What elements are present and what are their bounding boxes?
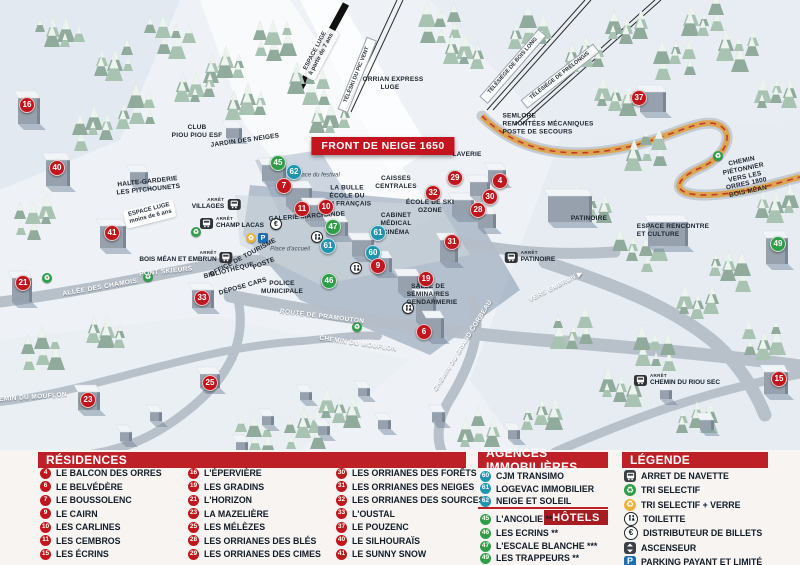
legend-marker-30: 30 — [336, 468, 347, 479]
legend-label: LES CARLINES — [56, 522, 121, 532]
bus-icon — [202, 218, 211, 227]
map-marker-37: 37 — [631, 90, 647, 106]
euro-legend-icon: € — [624, 526, 638, 540]
legend-marker-19: 19 — [188, 481, 199, 492]
residence-row: 33L'OUSTAL — [336, 507, 395, 520]
legend-label: LES ORRIANES DES BLÉS — [204, 536, 316, 546]
legende-row: ASCENSEUR — [624, 541, 696, 554]
legend-marker-16: 16 — [188, 468, 199, 479]
legend-label: LES ORRIANES DES NEIGES — [352, 482, 474, 492]
legend-marker-32: 32 — [336, 495, 347, 506]
legend-label: PARKING PAYANT ET LIMITÉ — [641, 557, 762, 565]
verre-legend-icon: ♻ — [624, 499, 636, 511]
map-label: TÉLÉSIÈGE DE PRÉLONGIS — [521, 44, 600, 109]
residence-row: 15LES ÉCRINS — [40, 548, 109, 561]
legend-label: L'ANCOLIE ** — [496, 514, 552, 524]
map-label: CHEMIN DU MOUFLON — [319, 335, 398, 354]
legend-label: LES ORRIANES DES SOURCES — [352, 495, 484, 505]
map-label: CINÉMA — [383, 229, 410, 237]
front-de-neige-banner: FRONT DE NEIGE 1650 — [311, 137, 454, 155]
legend-marker-23: 23 — [188, 508, 199, 519]
legend-marker-61: 61 — [480, 483, 491, 494]
residence-row: 11LES CEMBROS — [40, 534, 121, 547]
map-marker-29: 29 — [447, 170, 463, 186]
residence-row: 31LES ORRIANES DES NEIGES — [336, 480, 474, 493]
legend-marker-6: 6 — [40, 481, 51, 492]
wc-icon — [627, 514, 636, 523]
legend-label: LES ORRIANES DES CIMES — [204, 549, 321, 559]
map-marker-25: 25 — [202, 375, 218, 391]
bus-stop-icon — [220, 251, 233, 262]
map-label: TÉLÉSKI DU PIC VENT — [338, 37, 377, 113]
bus-stop-label: ARRÊTCHEMIN DU RIOU SEC — [650, 374, 720, 386]
legend-marker-10: 10 — [40, 522, 51, 533]
elevator-icon — [626, 543, 634, 553]
legend-label: LOGEVAC IMMOBILIER — [496, 484, 594, 494]
legend-label: LES ECRINS ** — [496, 528, 558, 538]
map-marker-9: 9 — [370, 258, 386, 274]
legend-label: LES GRADINS — [204, 482, 264, 492]
map-label: CHEMIN DU MOUFLON — [0, 391, 67, 404]
map-label: ESPACE LUGE à partir de 7 ans — [298, 25, 340, 81]
legend-marker-62: 62 — [480, 496, 491, 507]
legend-label: L'ESCALE BLANCHE *** — [496, 541, 597, 551]
bus-stop-icon — [505, 251, 518, 262]
bus-stop-icon — [200, 217, 213, 228]
bus-icon — [636, 375, 645, 384]
hotel-row: 45L'ANCOLIE ** — [480, 513, 552, 526]
legend-label: LE BELVÉDÈRE — [56, 482, 123, 492]
legend-label: LE POUZENC — [352, 522, 409, 532]
legend-label: TRI SELECTIF — [641, 485, 700, 495]
map-marker-16: 16 — [19, 97, 35, 113]
bus-stop: ARRÊTCHEMIN DU RIOU SEC — [634, 374, 720, 386]
map-label: ROUTE DE PRAMOUTON — [279, 308, 364, 326]
legend-label: LA MAZELIÈRE — [204, 509, 269, 519]
map-marker-61: 61 — [370, 225, 386, 241]
map-label: CHEMIN PIÉTONNIER VERS LES ORRES 1800 BO… — [714, 152, 776, 202]
legend-marker-9: 9 — [40, 508, 51, 519]
map-marker-10: 10 — [318, 199, 334, 215]
residence-row: 37LE POUZENC — [336, 521, 409, 534]
hotel-row: 49LES TRAPPEURS ** — [480, 552, 579, 565]
legend-label: LES ORRIANES DES FORÊTS — [352, 468, 477, 478]
residence-row: 21L'HORIZON — [188, 494, 252, 507]
map-marker-33: 33 — [194, 290, 210, 306]
hotels-header: HÔTELS — [544, 510, 608, 525]
map-label: Place d'accueil — [270, 246, 310, 253]
legend-label: ASCENSEUR — [641, 543, 696, 553]
legend-band: RÉSIDENCES AGENCES IMMOBILIÈRES LÉGENDE … — [0, 450, 800, 565]
residence-row: 16L'ÉPERVIÈRE — [188, 467, 262, 480]
legend-marker-33: 33 — [336, 508, 347, 519]
bus-stop-label: ARRÊTPATINOIRE — [521, 251, 555, 263]
bus-stop: ARRÊTVILLAGES — [192, 198, 241, 210]
bus-stop-name: VILLAGES — [192, 203, 225, 210]
legend-label: ARRET DE NAVETTE — [641, 471, 729, 481]
legend-marker-49: 49 — [480, 553, 491, 564]
map-label: CHEMIN DU GRAND CORBEAU — [432, 299, 495, 393]
legend-label: L'ÉPERVIÈRE — [204, 468, 262, 478]
recycle-icon: ♻ — [713, 151, 723, 161]
legende-header: LÉGENDE — [622, 452, 768, 468]
agences-header: AGENCES IMMOBILIÈRES — [478, 452, 608, 468]
lift-legend-icon — [624, 542, 636, 554]
residence-row: 41LE SUNNY SNOW — [336, 548, 426, 561]
residence-row: 9LE CAIRN — [40, 507, 98, 520]
wc-icon — [352, 264, 361, 273]
legend-label: DISTRIBUTEUR DE BILLETS — [643, 528, 762, 538]
map-marker-23: 23 — [80, 392, 96, 408]
legend-label: TOILETTE — [643, 514, 685, 524]
map-overlay: FRONT DE NEIGE 1650 P♻€♻♻♻♻♻CLUB PIOU PI… — [0, 0, 800, 450]
bus-icon — [626, 472, 635, 481]
map-label: POSTE — [252, 256, 276, 272]
agence-row: 60CJM TRANSIMO — [480, 470, 564, 483]
map-marker-7: 7 — [276, 178, 292, 194]
map-label: CLUB PIOU PIOU ESF — [172, 124, 223, 140]
map-marker-6: 6 — [416, 324, 432, 340]
residence-row: 25LES MÉLÈZES — [188, 521, 265, 534]
bus-stop-name: CHAMP LACAS — [216, 222, 264, 229]
residence-row: 7LE BOUSSOLENC — [40, 494, 132, 507]
bus-icon — [229, 199, 238, 208]
hotel-row: 46LES ECRINS ** — [480, 527, 558, 540]
map-label: CAISSES CENTRALES — [375, 175, 417, 191]
map-label: Place du festival — [296, 172, 340, 179]
map-label: HALTE-GARDERIE LES PITCHOUNETS — [115, 175, 180, 197]
residence-row: 19LES GRADINS — [188, 480, 264, 493]
recycle-legend-icon: ♻ — [624, 484, 636, 496]
legend-marker-21: 21 — [188, 495, 199, 506]
bus-stop-name: PATINOIRE — [521, 256, 555, 263]
legend-marker-46: 46 — [480, 528, 491, 539]
agence-row: 61LOGEVAC IMMOBILIER — [480, 482, 594, 495]
verre-icon: ♻ — [246, 233, 256, 243]
legend-marker-40: 40 — [336, 535, 347, 546]
residence-row: 40LE SILHOURAÏS — [336, 534, 420, 547]
bus-icon — [507, 252, 516, 261]
bus-stop-icon — [227, 198, 240, 209]
legend-marker-25: 25 — [188, 522, 199, 533]
wc-icon — [350, 262, 362, 274]
parking-legend-icon: P — [624, 556, 636, 565]
legend-label: TRI SELECTIF + VERRE — [641, 500, 740, 510]
legend-label: LES MÉLÈZES — [204, 522, 265, 532]
legend-marker-37: 37 — [336, 522, 347, 533]
legend-marker-28: 28 — [188, 535, 199, 546]
residence-row: 6LE BELVÉDÈRE — [40, 480, 123, 493]
legende-row: PPARKING PAYANT ET LIMITÉ — [624, 555, 762, 565]
residence-row: 30LES ORRIANES DES FORÊTS — [336, 467, 477, 480]
map-marker-19: 19 — [418, 271, 434, 287]
map-label: CABINET MÉDICAL — [380, 212, 411, 228]
map-marker-47: 47 — [325, 219, 341, 235]
map-marker-28: 28 — [470, 202, 486, 218]
map-label: ESPACE LUGE moins de 6 ans — [123, 199, 177, 229]
map-marker-32: 32 — [425, 185, 441, 201]
map-marker-49: 49 — [770, 236, 786, 252]
bus-stop-label: ARRÊTCHAMP LACAS — [216, 217, 264, 229]
map-label: PONT SKIEURS — [139, 265, 193, 278]
legend-marker-60: 60 — [480, 471, 491, 482]
euro-icon: € — [629, 529, 633, 537]
legend-label: NEIGE ET SOLEIL — [496, 496, 571, 506]
map-marker-46: 46 — [321, 273, 337, 289]
legend-marker-47: 47 — [480, 541, 491, 552]
legend-label: LES TRAPPEURS ** — [496, 553, 579, 563]
map-label: ESPACE RENCONTRE ET CULTURE — [637, 223, 709, 239]
legende-row: €DISTRIBUTEUR DE BILLETS — [624, 527, 762, 540]
map-marker-31: 31 — [444, 234, 460, 250]
legend-label: LE BOUSSOLENC — [56, 495, 132, 505]
bus-stop: ARRÊTBOIS MÉAN ET EMBRUN — [139, 251, 232, 263]
map-label: VERS EMBRUN ▶ — [527, 270, 584, 304]
map-label: L'ORRIAN EXPRESS LUGE — [357, 76, 424, 92]
map-marker-15: 15 — [771, 371, 787, 387]
map-label: POLICE MUNICIPALE — [261, 280, 303, 296]
legend-label: LES CEMBROS — [56, 536, 121, 546]
legend-marker-29: 29 — [188, 549, 199, 560]
residence-row: 23LA MAZELIÈRE — [188, 507, 269, 520]
map-marker-21: 21 — [15, 275, 31, 291]
legend-marker-15: 15 — [40, 549, 51, 560]
legend-marker-31: 31 — [336, 481, 347, 492]
residence-row: 28LES ORRIANES DES BLÉS — [188, 534, 316, 547]
bus-stop: ARRÊTPATINOIRE — [505, 251, 555, 263]
residence-row: 29LES ORRIANES DES CIMES — [188, 548, 321, 561]
parking-icon: P — [627, 557, 633, 565]
bus-stop-name: BOIS MÉAN ET EMBRUN — [139, 256, 216, 263]
agence-row: 62NEIGE ET SOLEIL — [480, 495, 571, 508]
map-marker-45: 45 — [270, 155, 286, 171]
map-marker-62: 62 — [286, 164, 302, 180]
map-label: ÉCOLE DE SKI OZONE — [406, 199, 454, 215]
bus-icon — [222, 252, 231, 261]
map-label: GENDARMERIE — [407, 299, 458, 307]
bus-stop-label: ARRÊTVILLAGES — [192, 198, 225, 210]
legend-label: LE CAIRN — [56, 509, 98, 519]
map-marker-11: 11 — [294, 201, 310, 217]
residence-row: 10LES CARLINES — [40, 521, 121, 534]
map-label: SEMLORE REMONTÉES MÉCANIQUES POSTE DE SE… — [502, 112, 593, 135]
resort-map-page: FRONT DE NEIGE 1650 P♻€♻♻♻♻♻CLUB PIOU PI… — [0, 0, 800, 565]
map-label: LAVERIE — [452, 151, 481, 159]
map-marker-61: 61 — [320, 238, 336, 254]
wc-legend-icon — [624, 512, 638, 526]
wc-icon — [313, 233, 322, 242]
map-area: FRONT DE NEIGE 1650 P♻€♻♻♻♻♻CLUB PIOU PI… — [0, 0, 800, 450]
recycle-icon: ♻ — [42, 273, 52, 283]
map-marker-30: 30 — [482, 189, 498, 205]
legend-label: LE BALCON DES ORRES — [56, 468, 162, 478]
legende-row: ♻TRI SELECTIF + VERRE — [624, 498, 740, 511]
bus-stop: ARRÊTCHAMP LACAS — [200, 217, 264, 229]
map-label: PATINOIRE — [571, 215, 607, 223]
bus-legend-icon — [624, 470, 636, 482]
legend-label: CJM TRANSIMO — [496, 471, 564, 481]
legend-marker-11: 11 — [40, 535, 51, 546]
legende-row: ARRET DE NAVETTE — [624, 470, 729, 483]
map-marker-40: 40 — [49, 160, 65, 176]
residence-row: 32LES ORRIANES DES SOURCES — [336, 494, 484, 507]
legend-label: L'HORIZON — [204, 495, 252, 505]
legend-label: L'OUSTAL — [352, 509, 395, 519]
legend-marker-45: 45 — [480, 514, 491, 525]
legende-row: ♻TRI SELECTIF — [624, 484, 700, 497]
map-label: ALLÉE DES CHAMOIS — [62, 278, 138, 299]
bus-stop-icon — [634, 374, 647, 385]
legend-label: LE SUNNY SNOW — [352, 549, 426, 559]
legend-marker-7: 7 — [40, 495, 51, 506]
legend-marker-4: 4 — [40, 468, 51, 479]
bus-stop-name: CHEMIN DU RIOU SEC — [650, 379, 720, 386]
residence-row: 4LE BALCON DES ORRES — [40, 467, 162, 480]
legend-label: LES ÉCRINS — [56, 549, 109, 559]
map-marker-4: 4 — [492, 173, 508, 189]
bus-stop-label: ARRÊTBOIS MÉAN ET EMBRUN — [139, 251, 216, 263]
map-marker-41: 41 — [104, 225, 120, 241]
legend-marker-41: 41 — [336, 549, 347, 560]
legend-label: LE SILHOURAÏS — [352, 536, 420, 546]
legende-row: TOILETTE — [624, 512, 685, 525]
